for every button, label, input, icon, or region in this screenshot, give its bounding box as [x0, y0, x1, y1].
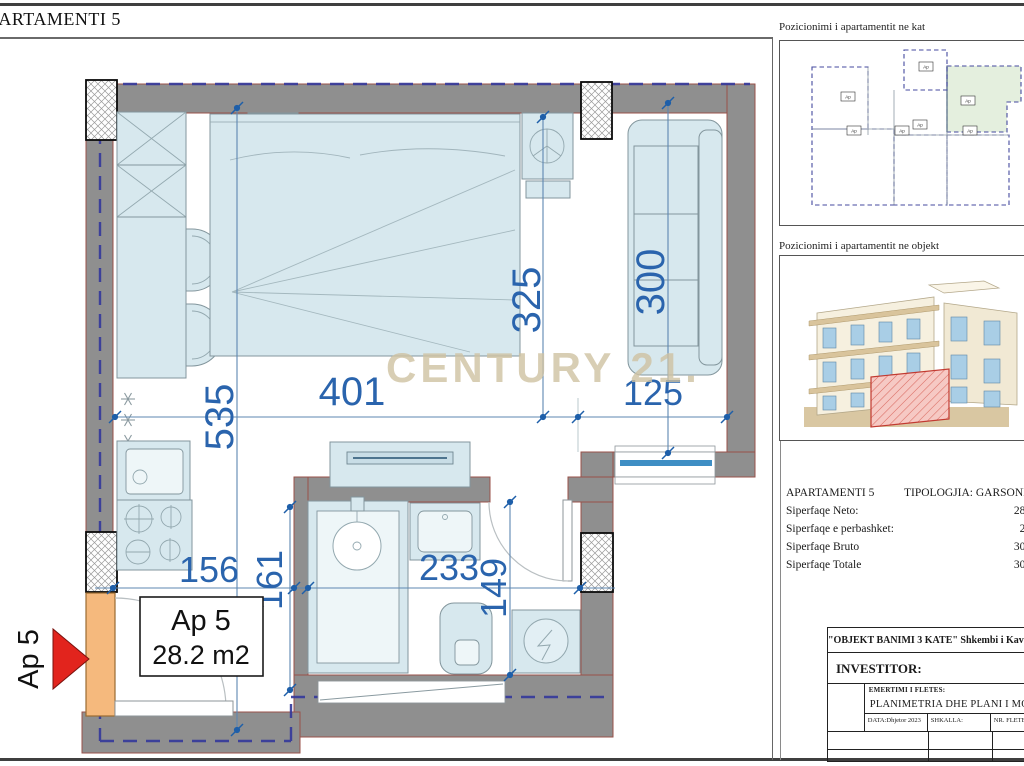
info-label: Siperfaqe Neto: [786, 505, 859, 517]
date-cell: DATA:Dhjetor 2023 [865, 714, 928, 731]
column [86, 532, 117, 592]
title-block: "OBJEKT BANIMI 3 KATE" Shkembi i Kavajes… [827, 627, 1024, 762]
dim-main-width: 401 [319, 370, 386, 414]
info-typology: TIPOLOGJIA: GARSONIE [904, 484, 1024, 502]
highlighted-apartment-3d [871, 369, 949, 427]
info-label: Siperfaqe Bruto [786, 541, 859, 553]
kitchen-sink [117, 441, 190, 500]
project-name: "OBJEKT BANIMI 3 KATE" Shkembi i Kavajes [828, 628, 1024, 653]
dim-sofa-height: 300 [629, 249, 673, 316]
empty-cell [993, 732, 1024, 749]
info-value: 30.3 [1014, 538, 1024, 556]
window-living [615, 446, 715, 484]
dim-bath-width: 233 [419, 547, 479, 588]
panel-divider [772, 37, 773, 760]
sheet-number-cell: NR. FLETES: [991, 714, 1024, 731]
key-plan: Ap Ap Ap Ap Ap Ap Ap [779, 40, 1024, 226]
empty-cell [828, 732, 929, 749]
dim-kitchen-height: 535 [198, 384, 242, 451]
sheet-name: PLANIMETRIA DHE PLANI I MOBILIMIT [870, 699, 1024, 710]
info-label: Siperfaqe e perbashket: [786, 523, 894, 535]
tv-unit [330, 442, 470, 487]
investor-label: INVESTITOR: [828, 653, 1024, 684]
column [581, 82, 612, 139]
empty-cell [828, 750, 929, 762]
svg-text:Ap: Ap [965, 99, 971, 104]
dim-hall-width: 156 [179, 549, 239, 590]
shower [308, 497, 408, 673]
unit-area: 28.2 m2 [152, 640, 250, 670]
kitchen-cabinets [117, 112, 186, 378]
floor-plan: 401 125 156 233 535 161 325 300 149 Ap 5… [0, 0, 772, 766]
svg-text:Ap: Ap [851, 129, 857, 134]
dim-sofa-width: 125 [623, 372, 683, 413]
column [86, 80, 117, 140]
bed [210, 114, 520, 356]
info-value: 2.1 [1020, 520, 1024, 538]
svg-text:Ap: Ap [899, 129, 905, 134]
nightstand-right [522, 113, 573, 198]
key-plan-title: Pozicionimi i apartamentit ne kat [779, 21, 925, 33]
panel-left-border [780, 440, 781, 760]
svg-text:Ap: Ap [923, 65, 929, 70]
object-view-title: Pozicionimi i apartamentit ne objekt [779, 240, 939, 252]
utility-symbols [121, 393, 135, 447]
empty-cell [993, 750, 1024, 762]
svg-text:Ap: Ap [917, 123, 923, 128]
window-bathroom [318, 681, 505, 703]
sheet-name-label: EMERTIMI I FLETES: [869, 686, 945, 694]
info-value: 30.3 [1014, 556, 1024, 574]
title-block-logo-cell [828, 684, 865, 731]
scale-cell: SHKALLA: [928, 714, 991, 731]
unit-name: Ap 5 [171, 605, 231, 637]
sofa [628, 120, 722, 375]
empty-cell [929, 732, 993, 749]
building-3d-view [779, 255, 1024, 441]
unit-arrow-label: Ap 5 [13, 629, 45, 689]
dim-bed-height: 325 [505, 267, 549, 334]
info-label: Siperfaqe Totale [786, 559, 861, 571]
drawing-sheet: APARTAMENTI 5 [0, 0, 1024, 766]
unit-label-box: Ap 5 28.2 m2 [140, 597, 263, 676]
svg-text:Ap: Ap [967, 129, 973, 134]
info-apartment-name: APARTAMENTI 5 [786, 487, 874, 499]
washing-machine [512, 610, 580, 673]
apartment-info: APARTAMENTI 5 TIPOLOGJIA: GARSONIE Siper… [786, 484, 1022, 574]
unit-arrow-icon [53, 629, 89, 689]
info-value: 28.2 [1014, 502, 1024, 520]
empty-cell [929, 750, 993, 762]
dim-bath-height: 149 [473, 558, 514, 618]
svg-text:Ap: Ap [845, 95, 851, 100]
